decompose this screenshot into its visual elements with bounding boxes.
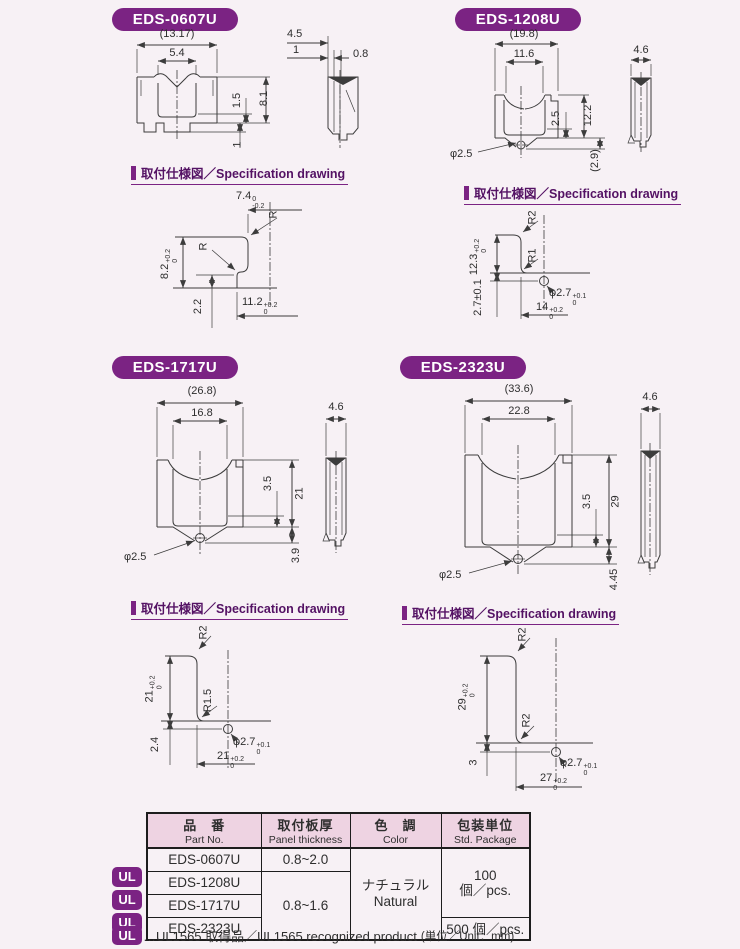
eds-0607u-mount-spec: 7.40-0.2 R R 8.2+0.20 2.2 11.2+0.20 <box>140 188 370 338</box>
package-cell: 100個／pcs. <box>441 848 530 917</box>
eds-2323u-mount-spec: R2 R2 29+0.20 3 φ2.7+0.10 27+0.20 <box>450 624 665 802</box>
heading-bar <box>402 606 407 620</box>
ul-badge: UL <box>112 890 142 910</box>
dim-depth: 4.6 <box>637 391 663 404</box>
eds-0607u-side-view: 4.5 1 0.8 <box>283 28 383 166</box>
radius-callout-top: R <box>267 211 280 219</box>
eds-1717u-side-view: 4.6 <box>318 383 382 591</box>
part-no-cell: EDS-1717U <box>147 894 261 917</box>
dim-hole-dia: φ2.5 <box>439 569 461 582</box>
dim-edge-distance: 2.4 <box>149 737 162 752</box>
heading-text: 取付仕様図／Specification drawing <box>412 603 616 622</box>
part-no-cell: EDS-0607U <box>147 848 261 871</box>
dim-below-height: 3.9 <box>290 548 303 563</box>
radius-callout-top: R2 <box>517 627 530 641</box>
dim-cut-height: 29+0.20 <box>457 683 477 710</box>
eds-1717u-front-view: (26.8) 16.8 3.5 21 3.9 φ2.5 <box>110 383 322 591</box>
dim-inner-width: 16.8 <box>176 407 228 420</box>
dim-edge-distance: 2.7±0.1 <box>472 279 485 316</box>
dim-depth: 4.5 <box>287 28 302 41</box>
table-header-row: 品 番Part No. 取付板厚Panel thickness 色 調Color… <box>147 813 530 848</box>
radius-callout-top: R2 <box>198 625 211 639</box>
dim-cut-width: 27+0.20 <box>540 772 567 792</box>
dim-below-height: (2.9) <box>589 149 602 172</box>
dim-overall-width: (26.8) <box>168 385 236 398</box>
dim-edge-distance: 3 <box>468 759 481 765</box>
spec-drawing-heading: 取付仕様図／Specification drawing <box>402 603 619 625</box>
dim-below-height: 4.45 <box>608 569 621 590</box>
dim-hole-dia: φ2.5 <box>450 148 472 161</box>
col-header-package: 包装単位Std. Package <box>441 813 530 848</box>
dim-d1: 1 <box>293 44 299 57</box>
dim-cut-height: 12.3+0.20 <box>468 239 488 275</box>
dim-body-height: 29 <box>610 495 623 507</box>
dim-inner-width: 11.6 <box>500 48 548 61</box>
dim-overall-width: (19.8) <box>490 28 558 41</box>
unit-note: (単位／Unit：mm) <box>421 928 514 944</box>
part-title-eds-2323u: EDS-2323U <box>400 356 526 379</box>
thickness-cell: 0.8~2.0 <box>261 848 350 871</box>
part-no-cell: EDS-1208U <box>147 871 261 894</box>
spec-drawing-heading: 取付仕様図／Specification drawing <box>464 183 681 205</box>
dim-foot-height: 1 <box>232 141 245 147</box>
heading-bar <box>131 601 136 615</box>
dim-hole-dia: φ2.5 <box>124 551 146 564</box>
part-title-eds-1717u: EDS-1717U <box>112 356 238 379</box>
dim-cut-top-width: 7.40-0.2 <box>236 190 264 210</box>
heading-text: 取付仕様図／Specification drawing <box>141 598 345 617</box>
dim-body-height: 21 <box>294 487 307 499</box>
dim-cut-step: 2.2 <box>192 299 205 314</box>
dim-cut-height: 21+0.20 <box>144 675 164 702</box>
radius-callout-top: R2 <box>527 210 540 224</box>
eds-1208u-front-view: (19.8) 11.6 2.5 12.2 (2.9) φ2.5 <box>448 28 623 178</box>
ul-badge: UL <box>112 926 142 945</box>
radius-callout-bottom: R2 <box>521 713 534 727</box>
eds-1208u-side-view: 4.6 <box>622 40 682 158</box>
table-row: EDS-0607U 0.8~2.0 ナチュラルNatural 100個／pcs. <box>147 848 530 871</box>
heading-text: 取付仕様図／Specification drawing <box>474 183 678 202</box>
heading-bar <box>131 166 136 180</box>
eds-2323u-front-view: (33.6) 22.8 3.5 29 4.45 φ2.5 <box>393 383 641 599</box>
eds-2323u-side-view: 4.6 <box>633 383 695 599</box>
dim-d2: 0.8 <box>353 48 368 61</box>
ul-footnote: UL …UL1565 取得品／UL1565 recognized product… <box>112 926 514 945</box>
dim-cut-height: 8.2+0.20 <box>159 249 179 279</box>
ul-badge: UL <box>112 867 142 887</box>
col-header-thickness: 取付板厚Panel thickness <box>261 813 350 848</box>
eds-1717u-mount-spec: R2 R1.5 21+0.20 2.4 φ2.7+0.10 21+0.20 <box>133 618 343 788</box>
radius-callout-bottom: R1.5 <box>202 689 215 712</box>
eds-2323u-side-drawing <box>633 383 695 599</box>
radius-callout-mid: R <box>197 243 210 251</box>
eds-1717u-side-drawing <box>318 383 382 591</box>
spec-drawing-heading: 取付仕様図／Specification drawing <box>131 163 348 185</box>
dim-overall-width: (33.6) <box>484 383 554 396</box>
footnote-text: …UL1565 取得品／UL1565 recognized product <box>143 926 417 945</box>
dim-overall-width: (13.17) <box>135 28 219 41</box>
spec-drawing-heading: 取付仕様図／Specification drawing <box>131 598 348 620</box>
eds-1208u-side-drawing <box>622 40 682 158</box>
dim-cut-width: 21+0.20 <box>217 750 244 770</box>
col-header-color: 色 調Color <box>350 813 441 848</box>
eds-1208u-mount-spec: R2 R1 12.3+0.20 2.7±0.1 φ2.7+0.10 14+0.2… <box>450 205 670 340</box>
spec-table: 品 番Part No. 取付板厚Panel thickness 色 調Color… <box>146 812 531 941</box>
dim-step-height: 3.5 <box>262 476 275 491</box>
dim-cut-width: 11.2+0.20 <box>242 296 277 316</box>
dim-step-height: 3.5 <box>581 494 594 509</box>
dim-depth: 4.6 <box>323 401 349 414</box>
dim-body-height: 12.2 <box>582 105 595 126</box>
col-header-part: 品 番Part No. <box>147 813 261 848</box>
dim-cut-width: 14+0.20 <box>536 301 563 321</box>
dim-step-height: 2.5 <box>550 111 563 126</box>
heading-bar <box>464 186 469 200</box>
dim-inner-width: 5.4 <box>155 47 199 60</box>
heading-text: 取付仕様図／Specification drawing <box>141 163 345 182</box>
dim-step-height: 1.5 <box>231 93 244 108</box>
dim-inner-width: 22.8 <box>493 405 545 418</box>
catalog-page: { "colors":{"accent_purple":"#7b2383","h… <box>0 0 740 949</box>
dim-depth: 4.6 <box>628 44 654 57</box>
radius-callout-bottom: R1 <box>527 248 540 262</box>
dim-body-height: 8.1 <box>258 91 271 106</box>
